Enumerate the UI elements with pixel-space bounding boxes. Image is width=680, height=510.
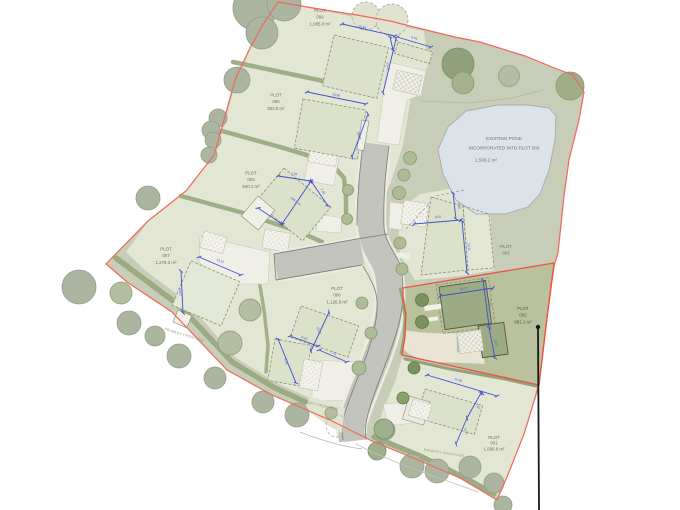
svg-text:3.50: 3.50	[435, 215, 442, 219]
svg-text:003: 003	[502, 251, 510, 256]
svg-text:INCORPORATED INTO PLOT 003: INCORPORATED INTO PLOT 003	[469, 146, 540, 151]
svg-text:PLOT: PLOT	[488, 435, 500, 440]
svg-text:002: 002	[519, 313, 527, 318]
svg-text:006: 006	[316, 15, 324, 20]
svg-text:940.1 m²: 940.1 m²	[242, 184, 260, 189]
svg-text:008: 008	[333, 293, 341, 298]
svg-text:2,508.2 m²: 2,508.2 m²	[475, 158, 497, 163]
svg-text:1,126.6 m²: 1,126.6 m²	[327, 300, 349, 305]
svg-text:822.8 m²: 822.8 m²	[267, 106, 285, 111]
svg-text:007: 007	[162, 253, 170, 258]
svg-text:PLOT: PLOT	[517, 306, 529, 311]
svg-text:10.11: 10.11	[467, 243, 472, 251]
svg-text:EXISTING POND: EXISTING POND	[486, 136, 523, 141]
svg-text:PLOT: PLOT	[500, 244, 512, 249]
svg-text:004: 004	[247, 177, 255, 182]
svg-text:981.1 m²: 981.1 m²	[514, 320, 532, 325]
svg-text:PLOT: PLOT	[245, 171, 257, 176]
svg-text:1,090.8 m²: 1,090.8 m²	[484, 447, 506, 452]
svg-text:PLOT: PLOT	[270, 93, 282, 98]
svg-text:1,085.0 m²: 1,085.0 m²	[310, 22, 332, 27]
svg-text:PLOT: PLOT	[160, 247, 172, 252]
svg-text:13.67: 13.67	[178, 288, 182, 296]
svg-text:1,279.3 m²: 1,279.3 m²	[156, 260, 178, 265]
svg-text:001: 001	[490, 441, 498, 446]
svg-text:005: 005	[272, 99, 280, 104]
svg-text:PLOT: PLOT	[331, 286, 343, 291]
